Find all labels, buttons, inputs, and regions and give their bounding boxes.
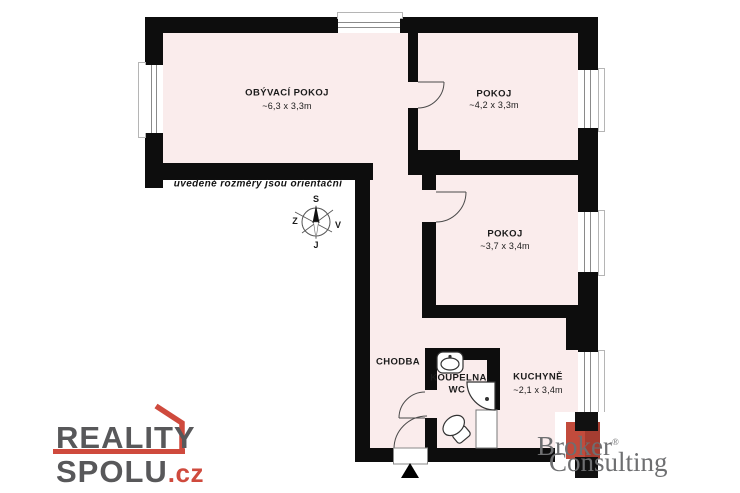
- label-kuchyne: KUCHYNĚ: [513, 372, 563, 383]
- window-living-left: [145, 65, 163, 133]
- compass-icon: [295, 205, 333, 239]
- wall-chodba-left: [355, 163, 370, 462]
- broker-logo-line2: Consulting: [549, 449, 668, 476]
- wall-pokoj1-pokoj2: [408, 160, 598, 175]
- compass-east-label: V: [335, 220, 341, 230]
- door-gap-koupelna: [425, 390, 437, 418]
- entrance-arrow-icon: [401, 463, 419, 478]
- registered-trademark-icon: ®: [612, 437, 619, 447]
- window-frame-kuchyne: [598, 350, 605, 419]
- label-pokoj2-dims: ~3,7 x 3,4m: [480, 241, 529, 251]
- window-frame-pokoj2: [598, 210, 605, 276]
- window-frame-pokoj1: [598, 68, 605, 132]
- label-kuchyne-dims: ~2,1 x 3,4m: [513, 385, 562, 395]
- label-pokoj2: POKOJ: [487, 229, 522, 240]
- window-pokoj1: [578, 70, 598, 128]
- compass-north-label: S: [313, 194, 319, 204]
- label-pokoj1-dims: ~4,2 x 3,3m: [469, 100, 518, 110]
- label-chodba: CHODBA: [376, 357, 420, 368]
- compass-west-label: Z: [292, 216, 298, 226]
- window-living-top: [338, 17, 400, 33]
- window-kuchyne: [578, 352, 598, 415]
- label-koupelna: KOUPELNA,: [430, 373, 490, 384]
- floor-upper-block: [150, 22, 593, 175]
- compass-south-label: J: [313, 240, 318, 250]
- label-living-room: OBÝVACÍ POKOJ: [245, 88, 329, 99]
- reality-logo-tld: .cz: [168, 458, 204, 488]
- door-gap-entrance: [393, 448, 428, 462]
- wall-pokoj2-kuchyne: [422, 305, 578, 318]
- door-gap-pokoj1: [408, 82, 418, 108]
- label-wc: WC: [449, 385, 466, 396]
- dimensions-note: uvedené rozměry jsou orientační: [174, 179, 343, 190]
- label-pokoj1: POKOJ: [476, 89, 511, 100]
- wall-living-bottom: [145, 163, 373, 180]
- broker-logo-black-square-top: [575, 412, 598, 431]
- door-gap-pokoj2: [422, 190, 436, 222]
- window-pokoj2: [578, 212, 598, 272]
- reality-logo-spolu: SPOLU: [56, 454, 168, 489]
- reality-logo-line2: SPOLU.cz: [56, 456, 204, 487]
- label-living-room-dims: ~6,3 x 3,3m: [262, 101, 311, 111]
- floorplan-canvas: OBÝVACÍ POKOJ ~6,3 x 3,3m POKOJ ~4,2 x 3…: [0, 0, 740, 493]
